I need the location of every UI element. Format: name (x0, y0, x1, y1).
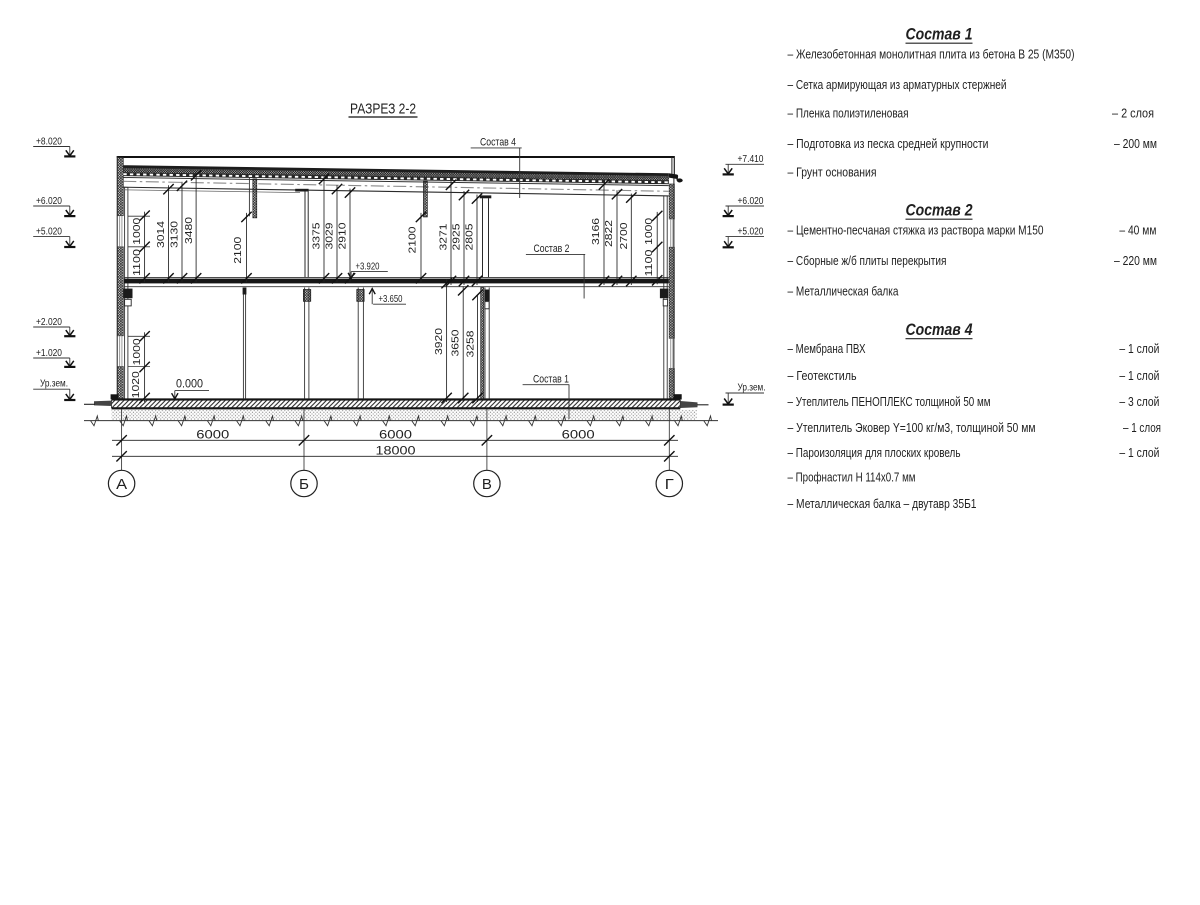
svg-text:2805: 2805 (464, 223, 476, 250)
svg-text:+5.020: +5.020 (738, 226, 764, 237)
svg-text:+1.020: +1.020 (36, 348, 62, 359)
svg-text:Состав 4: Состав 4 (906, 321, 973, 339)
svg-text:Б: Б (299, 477, 309, 493)
svg-text:3271: 3271 (438, 223, 450, 250)
svg-text:– Утеплитель ПЕНОПЛЕКС толщин: – Утеплитель ПЕНОПЛЕКС толщиной 50 мм (788, 394, 991, 409)
svg-text:– Геотекстиль: – Геотекстиль (788, 368, 857, 383)
svg-text:– Железобетонная монолитная: – Железобетонная монолитная плита из бет… (788, 46, 1075, 61)
svg-text:– Утеплитель Эковер Y=100 кг/: – Утеплитель Эковер Y=100 кг/м3, толщино… (788, 420, 1036, 435)
svg-text:1000: 1000 (131, 338, 143, 365)
svg-text:2100: 2100 (232, 237, 244, 264)
svg-text:А: А (116, 477, 127, 493)
svg-text:Состав 2: Состав 2 (906, 202, 973, 220)
svg-text:– Цементно-песчаная стяжка из: – Цементно-песчаная стяжка из раствора м… (788, 222, 1044, 237)
svg-text:– Мембрана ПВХ: – Мембрана ПВХ (788, 341, 866, 356)
svg-text:Ур.зем.: Ур.зем. (40, 379, 68, 390)
svg-text:Ур.зем.: Ур.зем. (738, 382, 766, 393)
svg-text:+3.650: +3.650 (379, 293, 403, 305)
svg-text:– Металлическая балка: – Металлическая балка (788, 283, 900, 298)
svg-text:– 2 слоя: – 2 слоя (1112, 106, 1154, 121)
svg-text:+5.020: +5.020 (36, 226, 62, 237)
svg-text:2100: 2100 (407, 226, 419, 253)
svg-text:Состав 4: Состав 4 (480, 136, 516, 148)
svg-text:– Сетка армирующая из арматур: – Сетка армирующая из арматурных стержне… (788, 77, 1007, 92)
svg-text:+6.020: +6.020 (738, 196, 764, 207)
svg-text:6000: 6000 (379, 429, 412, 441)
svg-text:1100: 1100 (643, 249, 655, 276)
svg-text:18000: 18000 (376, 445, 416, 457)
svg-text:– Грунт основания: – Грунт основания (788, 165, 877, 180)
svg-text:1000: 1000 (643, 218, 655, 245)
svg-text:– 200 мм: – 200 мм (1114, 136, 1157, 151)
svg-text:2822: 2822 (603, 220, 615, 247)
svg-text:3650: 3650 (450, 329, 462, 356)
svg-text:– Пленка полиэтиленовая: – Пленка полиэтиленовая (788, 106, 909, 121)
svg-text:2910: 2910 (337, 222, 349, 249)
svg-text:В: В (482, 477, 492, 493)
svg-text:РАЗРЕЗ 2-2: РАЗРЕЗ 2-2 (350, 101, 416, 118)
svg-text:– Сборные ж/б плиты перекрыти: – Сборные ж/б плиты перекрытия (788, 253, 947, 268)
svg-text:Состав 2: Состав 2 (534, 243, 570, 255)
svg-text:– 3 слой: – 3 слой (1119, 394, 1159, 409)
svg-text:3480: 3480 (183, 217, 195, 244)
svg-text:Г: Г (665, 477, 674, 493)
svg-text:+7.410: +7.410 (738, 154, 764, 165)
svg-text:– Металлическая балка – двута: – Металлическая балка – двутавр 35Б1 (788, 496, 977, 511)
svg-text:2925: 2925 (451, 223, 463, 250)
svg-text:Состав 1: Состав 1 (906, 26, 973, 44)
svg-text:– 220 мм: – 220 мм (1114, 253, 1157, 268)
svg-text:3130: 3130 (169, 221, 181, 248)
svg-text:1100: 1100 (131, 249, 143, 276)
svg-text:– 40 мм: – 40 мм (1119, 222, 1156, 237)
svg-text:3375: 3375 (311, 222, 323, 249)
svg-text:3166: 3166 (590, 218, 602, 245)
svg-text:– Профнастил Н 114х0.7 мм: – Профнастил Н 114х0.7 мм (788, 469, 916, 484)
svg-text:3029: 3029 (324, 222, 336, 249)
svg-text:– 1 слой: – 1 слой (1119, 445, 1159, 460)
svg-text:– 1 слой: – 1 слой (1119, 341, 1159, 356)
svg-text:0.000: 0.000 (176, 379, 203, 391)
svg-text:3258: 3258 (464, 330, 476, 357)
svg-text:6000: 6000 (562, 429, 595, 441)
svg-text:+3.920: +3.920 (356, 260, 380, 272)
svg-text:3014: 3014 (155, 221, 167, 248)
svg-text:6000: 6000 (196, 429, 229, 441)
svg-text:1020: 1020 (130, 371, 142, 398)
svg-text:2700: 2700 (618, 222, 630, 249)
svg-text:– Пароизоляция для плоских кр: – Пароизоляция для плоских кровель (788, 445, 961, 460)
svg-text:+2.020: +2.020 (36, 317, 62, 328)
svg-text:+6.020: +6.020 (36, 196, 62, 207)
svg-text:3920: 3920 (433, 328, 445, 355)
svg-text:– Подготовка из песка средней: – Подготовка из песка средней крупности (788, 136, 989, 151)
svg-text:+8.020: +8.020 (36, 136, 62, 147)
svg-text:– 1 слой: – 1 слой (1119, 368, 1159, 383)
svg-text:– 1 слоя: – 1 слоя (1123, 420, 1161, 435)
svg-text:Состав 1: Состав 1 (533, 373, 569, 385)
svg-text:1000: 1000 (131, 218, 143, 245)
